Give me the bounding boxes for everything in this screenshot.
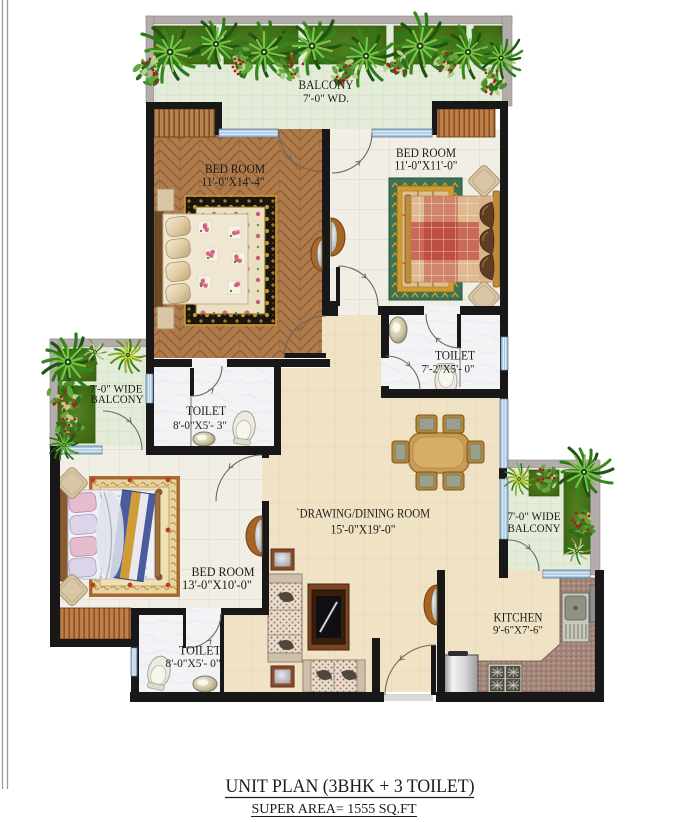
svg-text:BED ROOM: BED ROOM [205, 162, 265, 176]
svg-text:BALCONY: BALCONY [91, 394, 145, 406]
svg-text:BED ROOM: BED ROOM [192, 565, 255, 579]
svg-text:15'-0"X19'-0": 15'-0"X19'-0" [331, 523, 396, 537]
svg-text:11'-0"X14'-4": 11'-0"X14'-4" [202, 175, 265, 189]
svg-text:SUPER AREA= 1555 SQ.FT: SUPER AREA= 1555 SQ.FT [252, 802, 417, 817]
svg-text:UNIT PLAN (3BHK + 3 TOILET): UNIT PLAN (3BHK + 3 TOILET) [226, 776, 475, 797]
svg-text:11'-0"X11'-0": 11'-0"X11'-0" [395, 159, 458, 173]
svg-text:7'-2"X5'- 0": 7'-2"X5'- 0" [422, 362, 475, 376]
svg-text:8'-0"X5'- 3": 8'-0"X5'- 3" [173, 418, 227, 432]
svg-text:13'-0"X10'-0": 13'-0"X10'-0" [182, 578, 252, 592]
svg-text:BALCONY: BALCONY [508, 523, 562, 535]
svg-text:7'-0" WIDE: 7'-0" WIDE [508, 511, 561, 523]
svg-text:BALCONY: BALCONY [299, 78, 354, 92]
svg-text:8'-0"X5'- 0": 8'-0"X5'- 0" [166, 656, 221, 670]
svg-text:7'-0" WD.: 7'-0" WD. [303, 91, 349, 105]
svg-text:TOILET: TOILET [435, 349, 475, 363]
svg-text:`DRAWING/DINING ROOM: `DRAWING/DINING ROOM [296, 507, 430, 521]
svg-text:9'-6"X7'-6": 9'-6"X7'-6" [493, 623, 543, 637]
svg-text:TOILET: TOILET [186, 404, 226, 418]
